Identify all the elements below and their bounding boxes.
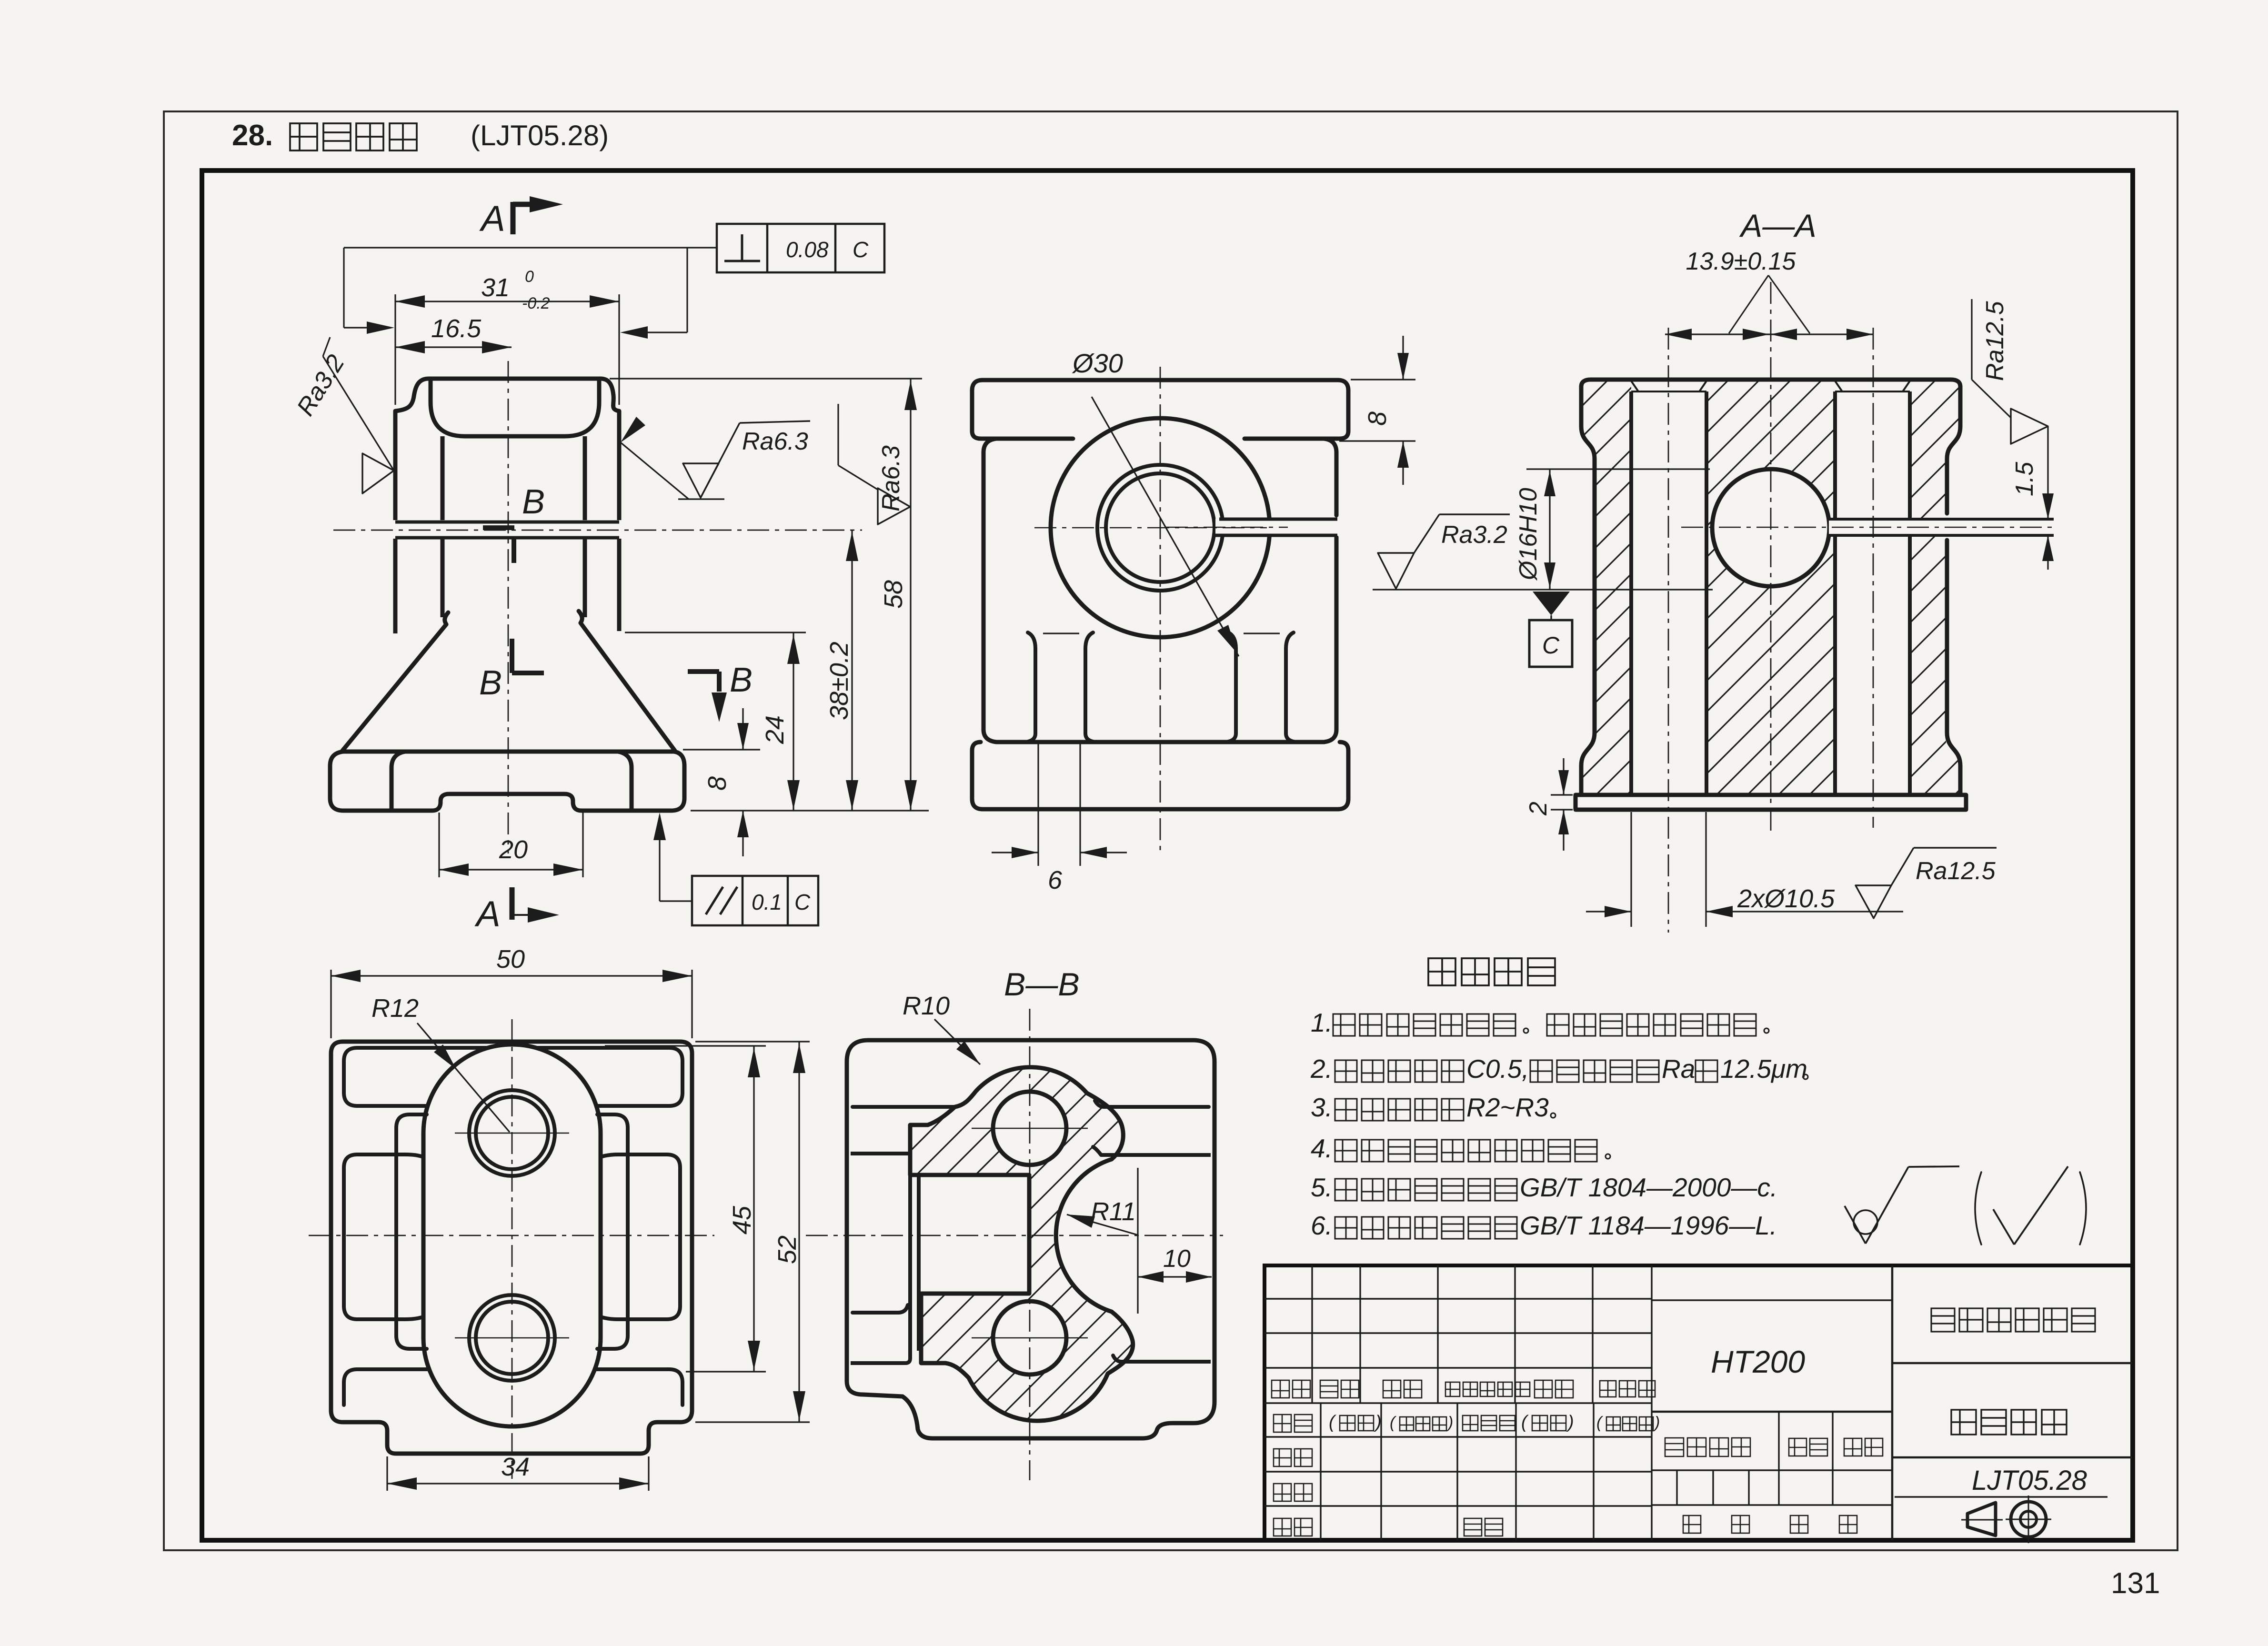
- svg-text:1.5: 1.5: [2011, 462, 2038, 496]
- svg-text:50: 50: [496, 945, 525, 974]
- svg-text:0: 0: [525, 268, 534, 286]
- svg-text:Ra6.3: Ra6.3: [877, 445, 905, 512]
- svg-text:B—B: B—B: [1004, 966, 1080, 1003]
- svg-text:6: 6: [1048, 866, 1063, 894]
- svg-text:52: 52: [773, 1235, 802, 1264]
- svg-text:HT200: HT200: [1711, 1344, 1805, 1379]
- svg-text:R2~R3: R2~R3: [1466, 1093, 1549, 1122]
- svg-text:12.5μm: 12.5μm: [1720, 1054, 1807, 1084]
- svg-text:2.: 2.: [1310, 1054, 1333, 1084]
- svg-text:C: C: [794, 890, 811, 914]
- svg-text:2xØ10.5: 2xØ10.5: [1737, 884, 1835, 913]
- svg-text:8: 8: [703, 776, 732, 791]
- svg-text:58: 58: [879, 580, 908, 609]
- svg-text:B: B: [479, 664, 502, 702]
- svg-text:4.: 4.: [1311, 1134, 1333, 1163]
- svg-text:Ø16H10: Ø16H10: [1515, 488, 1542, 581]
- svg-text:A: A: [474, 894, 501, 934]
- svg-text:20: 20: [499, 835, 528, 864]
- svg-text:-0.2: -0.2: [522, 294, 550, 312]
- svg-text:28.: 28.: [232, 119, 273, 152]
- svg-text:R11: R11: [1091, 1197, 1136, 1226]
- svg-text:3.: 3.: [1311, 1093, 1333, 1122]
- svg-text:Ø30: Ø30: [1072, 348, 1123, 378]
- svg-text:1.: 1.: [1311, 1008, 1333, 1037]
- svg-text:B: B: [730, 661, 753, 699]
- svg-text:10: 10: [1163, 1245, 1191, 1273]
- svg-text:16.5: 16.5: [431, 314, 482, 343]
- svg-text:13.9±0.15: 13.9±0.15: [1686, 248, 1796, 275]
- svg-text:C0.5,: C0.5,: [1466, 1054, 1529, 1084]
- svg-text:GB/T 1184—1996—L.: GB/T 1184—1996—L.: [1520, 1211, 1777, 1240]
- svg-text:45: 45: [728, 1205, 756, 1234]
- svg-text:C: C: [853, 237, 869, 262]
- svg-text:LJT05.28: LJT05.28: [1972, 1465, 2087, 1496]
- svg-text:131: 131: [2111, 1567, 2160, 1600]
- svg-text:6.: 6.: [1311, 1211, 1333, 1240]
- svg-text:38±0.2: 38±0.2: [825, 642, 853, 720]
- svg-text:24: 24: [761, 715, 789, 744]
- svg-text:5.: 5.: [1311, 1173, 1333, 1202]
- svg-text:31: 31: [481, 273, 510, 302]
- svg-text:A—A: A—A: [1739, 208, 1816, 244]
- svg-text:Ra12.5: Ra12.5: [1981, 301, 2009, 381]
- svg-text:8: 8: [1363, 411, 1392, 426]
- svg-text:R12: R12: [371, 994, 419, 1023]
- svg-text:A: A: [479, 199, 505, 239]
- svg-text:Ra3.2: Ra3.2: [1441, 521, 1507, 549]
- svg-text:Ra: Ra: [1662, 1054, 1695, 1084]
- svg-text:(LJT05.28): (LJT05.28): [471, 120, 609, 151]
- svg-text:C: C: [1542, 632, 1560, 659]
- svg-text:34: 34: [501, 1453, 530, 1481]
- svg-text:GB/T 1804—2000—c.: GB/T 1804—2000—c.: [1520, 1173, 1777, 1202]
- svg-text:Ra12.5: Ra12.5: [1916, 857, 1996, 885]
- svg-text:2: 2: [1525, 802, 1552, 816]
- svg-text:B: B: [522, 483, 545, 521]
- svg-text:Ra6.3: Ra6.3: [742, 428, 808, 455]
- svg-text:R10: R10: [903, 992, 950, 1020]
- svg-text:0.1: 0.1: [752, 890, 782, 914]
- svg-text:0.08: 0.08: [786, 237, 829, 262]
